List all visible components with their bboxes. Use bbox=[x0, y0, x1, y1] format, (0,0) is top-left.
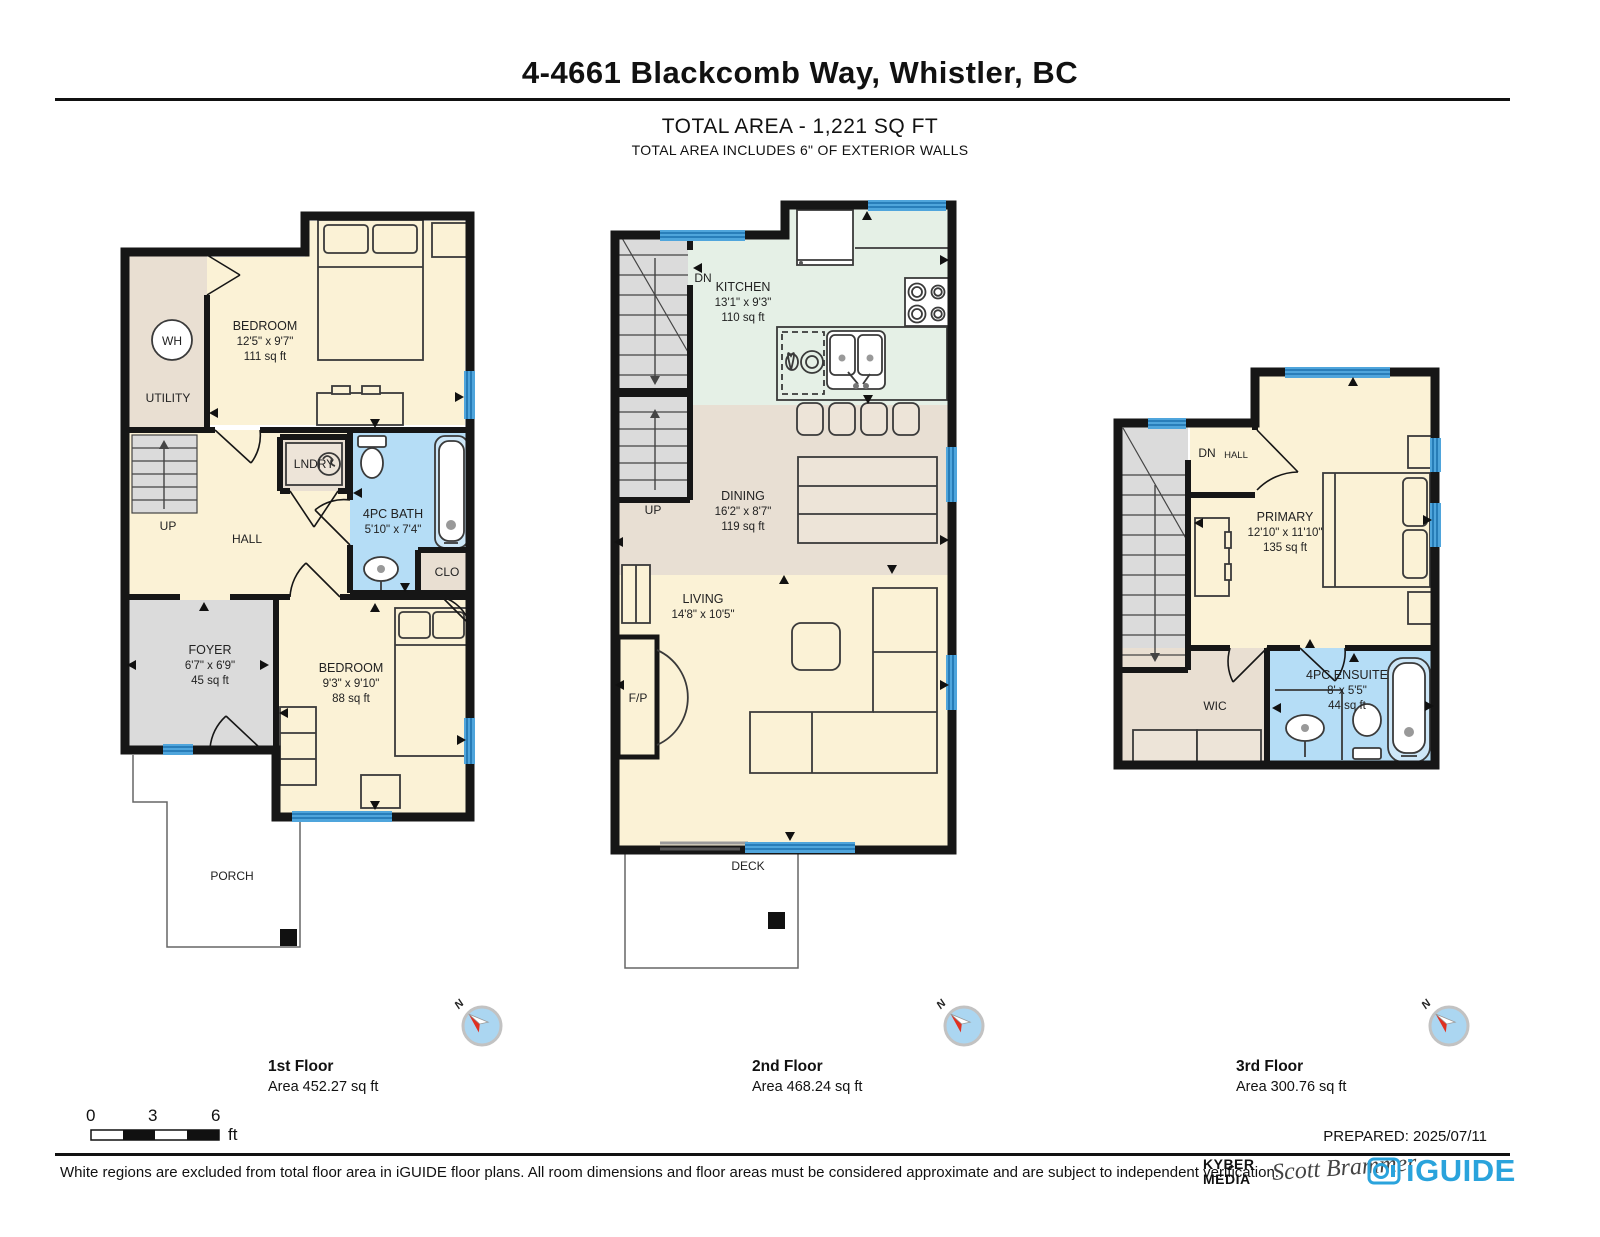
double-sink bbox=[827, 331, 885, 389]
up-label-2: UP bbox=[645, 503, 662, 517]
iguide-camera-icon bbox=[1367, 1155, 1401, 1187]
floor-plan-2nd: DECK bbox=[600, 190, 970, 985]
dresser-2 bbox=[280, 707, 316, 785]
primary-dim: 12'10" x 11'10" bbox=[1247, 527, 1322, 539]
bedroom1-name: BEDROOM bbox=[233, 319, 298, 333]
ensuite-dim: 8' x 5'5" bbox=[1327, 685, 1367, 697]
floor3-caption-area: Area 300.76 sq ft bbox=[1236, 1079, 1476, 1095]
floor3-caption: 3rd Floor bbox=[1236, 1058, 1476, 1076]
floor-plan-3rd: DN HALL PRIMARY 12'10" x 11'10" 135 sq f… bbox=[1095, 360, 1445, 775]
bathtub-3 bbox=[1388, 658, 1430, 762]
bath-name: 4PC BATH bbox=[363, 507, 423, 521]
stairs-up-1 bbox=[132, 435, 197, 513]
hall-label-1: HALL bbox=[232, 532, 262, 546]
foyer-name: FOYER bbox=[188, 643, 231, 657]
bed-queen-2 bbox=[395, 608, 468, 756]
bedroom2-name: BEDROOM bbox=[319, 661, 384, 675]
page-title: 4-4661 Blackcomb Way, Whistler, BC bbox=[0, 55, 1600, 91]
dresser-3 bbox=[1195, 518, 1231, 596]
living-dim: 14'8" x 10'5" bbox=[671, 609, 734, 621]
kitchen-area: 110 sq ft bbox=[721, 312, 765, 324]
coffee-table bbox=[792, 623, 840, 670]
up-label-1: UP bbox=[160, 519, 177, 533]
header-divider bbox=[55, 98, 1510, 101]
caption-1st-floor: 1st Floor Area 452.27 sq ft bbox=[268, 1058, 508, 1095]
bathtub-1 bbox=[435, 436, 468, 548]
floor2-caption: 2nd Floor bbox=[752, 1058, 992, 1076]
iguide-wordmark: iGUIDE bbox=[1406, 1153, 1516, 1189]
ensuite-area: 44 sq ft bbox=[1328, 700, 1367, 712]
bed-queen-1 bbox=[318, 220, 423, 360]
clo-label: CLO bbox=[435, 565, 460, 579]
floor2-caption-area: Area 468.24 sq ft bbox=[752, 1079, 992, 1095]
lndry-label: LNDRY bbox=[294, 457, 334, 471]
foyer-area: 45 sq ft bbox=[191, 675, 230, 687]
deck: DECK bbox=[625, 850, 798, 968]
bed-primary bbox=[1323, 473, 1430, 587]
floor-plan-page: 4-4661 Blackcomb Way, Whistler, BC TOTAL… bbox=[0, 0, 1600, 1237]
living-name: LIVING bbox=[683, 592, 724, 606]
deck-label: DECK bbox=[731, 859, 764, 873]
prepared-date: PREPARED: 2025/07/11 bbox=[1323, 1128, 1487, 1145]
disclaimer-text: White regions are excluded from total fl… bbox=[60, 1164, 1279, 1181]
fp-label: F/P bbox=[629, 691, 648, 705]
wic-label: WIC bbox=[1203, 699, 1227, 713]
dining-dim: 16'2" x 8'7" bbox=[715, 506, 772, 518]
dn-label-3: DN bbox=[1198, 446, 1215, 460]
caption-2nd-floor: 2nd Floor Area 468.24 sq ft bbox=[752, 1058, 992, 1095]
fridge bbox=[797, 210, 853, 265]
floor-plan-1st: PORCH WH bbox=[110, 195, 510, 965]
wh-label: WH bbox=[162, 334, 182, 348]
kyber-media-logo: KYBER MEDIA bbox=[1203, 1157, 1255, 1187]
wic-shelves bbox=[1133, 730, 1261, 762]
iguide-logo: iGUIDE bbox=[1367, 1153, 1516, 1189]
stove bbox=[905, 278, 949, 326]
footer-divider bbox=[55, 1153, 1510, 1156]
utility-label: UTILITY bbox=[146, 391, 191, 405]
dining-name: DINING bbox=[721, 489, 765, 503]
cabinet bbox=[622, 565, 650, 623]
water-heater: WH bbox=[152, 320, 192, 360]
caption-3rd-floor: 3rd Floor Area 300.76 sq ft bbox=[1236, 1058, 1476, 1095]
floor1-caption-area: Area 452.27 sq ft bbox=[268, 1079, 508, 1095]
scale-6: 6 bbox=[211, 1106, 220, 1126]
compass-icon-3: N bbox=[1417, 995, 1477, 1053]
nightstand-1 bbox=[432, 223, 468, 257]
floor1-caption: 1st Floor bbox=[268, 1058, 508, 1076]
primary-area: 135 sq ft bbox=[1263, 542, 1308, 554]
side-table bbox=[361, 775, 400, 808]
compass-n-2: N bbox=[934, 997, 949, 1012]
scale-3: 3 bbox=[148, 1106, 157, 1126]
bedroom1-area: 111 sq ft bbox=[244, 351, 287, 363]
compass-n-1: N bbox=[452, 997, 467, 1012]
dn-label-2: DN bbox=[694, 271, 711, 285]
kitchen-dim: 13'1" x 9'3" bbox=[715, 297, 772, 309]
foyer-dim: 6'7" x 6'9" bbox=[185, 660, 235, 672]
bedroom1-dim: 12'5" x 9'7" bbox=[237, 336, 294, 348]
kitchen-name: KITCHEN bbox=[716, 280, 771, 294]
kyber-line1: KYBER bbox=[1203, 1157, 1255, 1172]
toilet-1 bbox=[358, 436, 386, 478]
compass-n-3: N bbox=[1419, 997, 1434, 1012]
scale-unit: ft bbox=[228, 1125, 237, 1145]
bedroom2-area: 88 sq ft bbox=[332, 693, 371, 705]
ensuite-name: 4PC ENSUITE bbox=[1306, 668, 1388, 682]
toilet-3 bbox=[1353, 704, 1381, 759]
total-area-label: TOTAL AREA - 1,221 SQ FT bbox=[0, 115, 1600, 139]
compass-icon-1: N bbox=[450, 995, 510, 1053]
scale-0: 0 bbox=[86, 1106, 95, 1126]
bedroom2-dim: 9'3" x 9'10" bbox=[323, 678, 380, 690]
total-area-note: TOTAL AREA INCLUDES 6" OF EXTERIOR WALLS bbox=[0, 142, 1600, 158]
dining-table bbox=[798, 457, 937, 543]
scale-bar-graphic bbox=[90, 1129, 220, 1141]
porch-label: PORCH bbox=[210, 869, 253, 883]
hall-label-3: HALL bbox=[1224, 450, 1248, 461]
dining-area: 119 sq ft bbox=[721, 521, 765, 533]
bath-dim: 5'10" x 7'4" bbox=[365, 524, 422, 536]
kyber-line2: MEDIA bbox=[1203, 1172, 1255, 1187]
primary-name: PRIMARY bbox=[1257, 510, 1314, 524]
compass-icon-2: N bbox=[932, 995, 992, 1053]
